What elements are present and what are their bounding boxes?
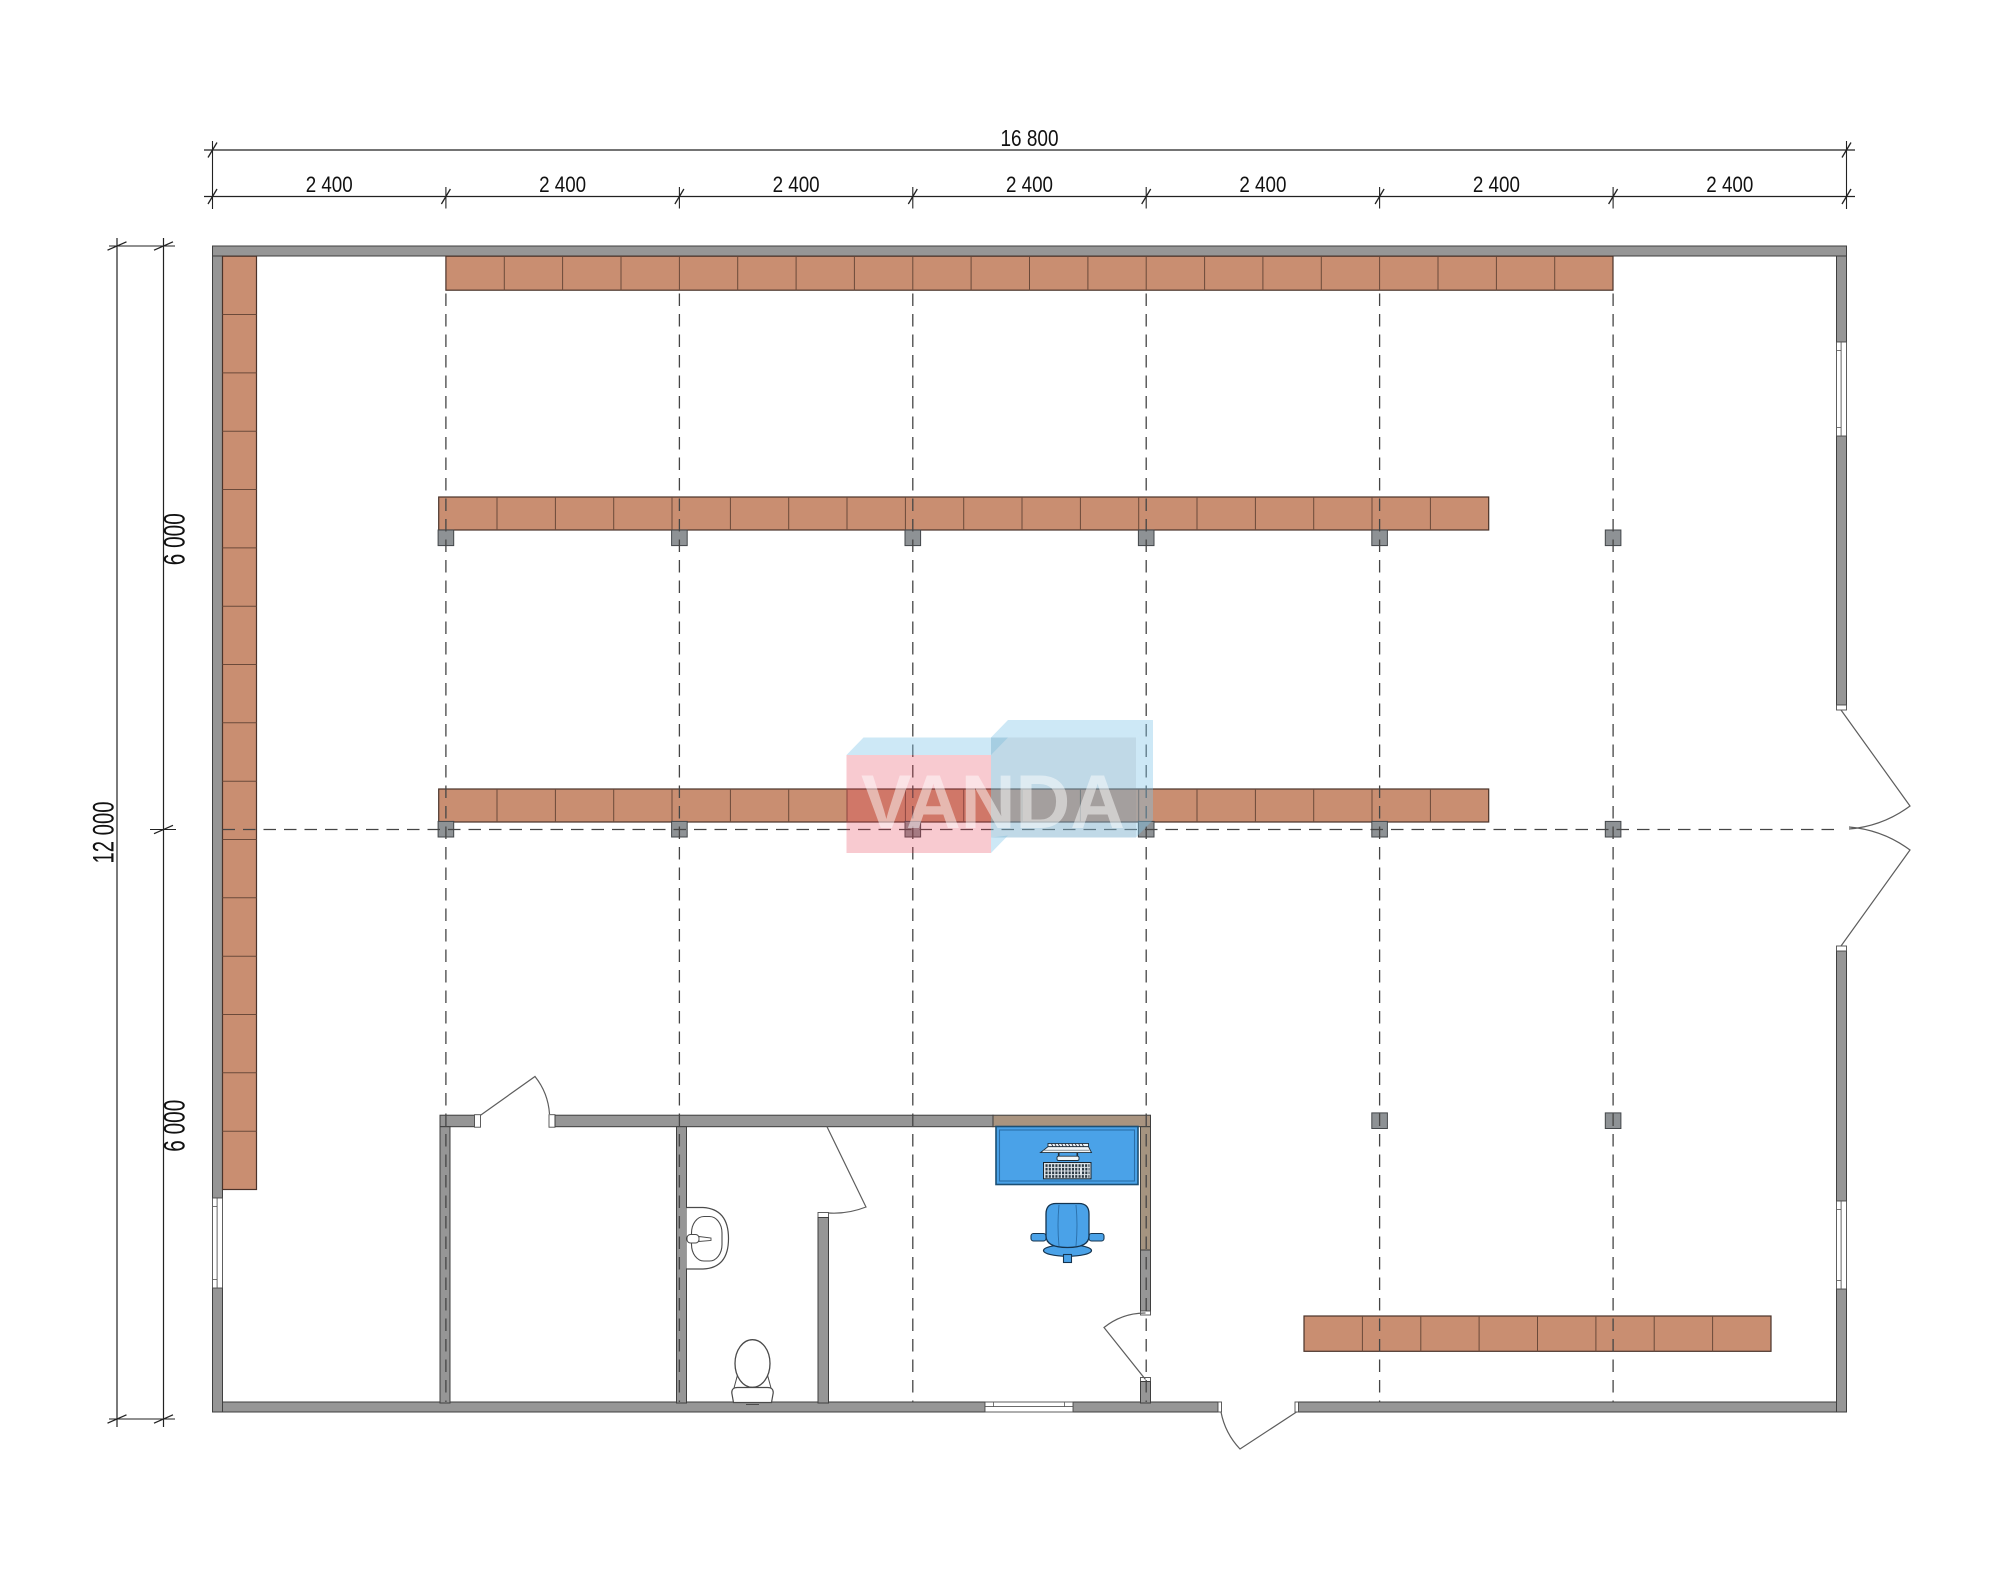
svg-text:2 400: 2 400: [1239, 172, 1286, 197]
svg-text:2 400: 2 400: [539, 172, 586, 197]
svg-text:6 000: 6 000: [159, 513, 192, 565]
svg-text:6 000: 6 000: [159, 1100, 192, 1152]
svg-text:2 400: 2 400: [773, 172, 820, 197]
svg-text:16 800: 16 800: [1001, 125, 1059, 151]
svg-text:2 400: 2 400: [1473, 172, 1520, 197]
svg-text:VANDA: VANDA: [861, 760, 1125, 845]
svg-text:2 400: 2 400: [1706, 172, 1753, 197]
svg-text:2 400: 2 400: [1006, 172, 1053, 197]
svg-text:2 400: 2 400: [306, 172, 353, 197]
svg-text:12 000: 12 000: [88, 802, 121, 864]
